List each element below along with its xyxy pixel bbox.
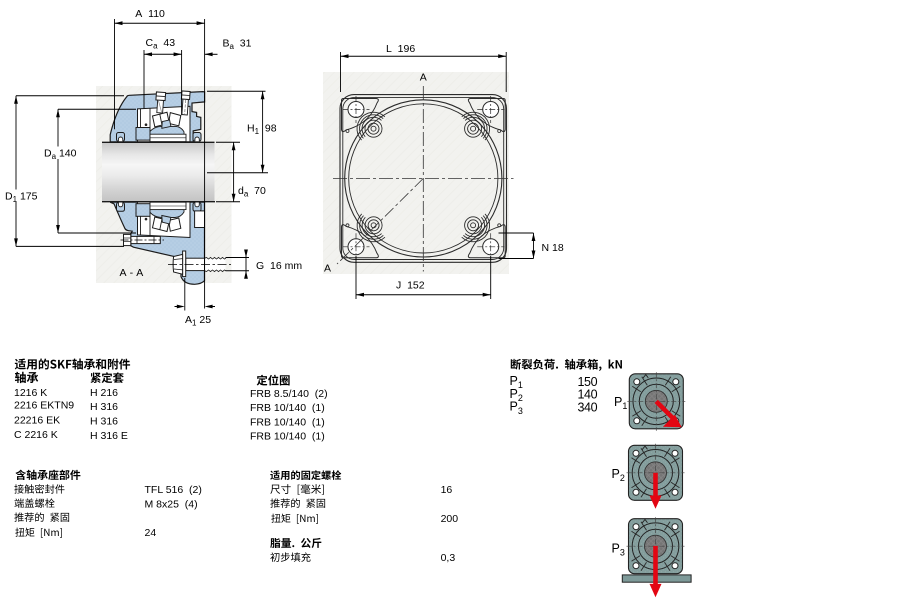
svg-text:16: 16 xyxy=(441,484,453,496)
svg-text:340: 340 xyxy=(578,400,598,414)
svg-text:TFL 516 (2): TFL 516 (2) xyxy=(145,484,202,496)
svg-text:H 316: H 316 xyxy=(90,401,118,413)
svg-text:P1: P1 xyxy=(614,395,627,411)
svg-text:FRB 10/140 (1): FRB 10/140 (1) xyxy=(250,416,325,428)
svg-text:FRB 10/140 (1): FRB 10/140 (1) xyxy=(250,431,325,443)
svg-text:C 2216 K: C 2216 K xyxy=(14,429,58,441)
svg-text:A: A xyxy=(324,263,331,275)
svg-text:M 8x25 (4): M 8x25 (4) xyxy=(145,498,198,510)
svg-text:FRB 10/140 (1): FRB 10/140 (1) xyxy=(250,402,325,414)
svg-text:G 16 mm: G 16 mm xyxy=(256,260,302,272)
svg-text:Ba 31: Ba 31 xyxy=(223,38,252,52)
svg-text:H 316: H 316 xyxy=(90,416,118,428)
svg-text:22216 EK: 22216 EK xyxy=(14,414,60,426)
svg-text:200: 200 xyxy=(441,513,459,525)
svg-text:H 216: H 216 xyxy=(90,387,118,399)
svg-text:2216 EKTN9: 2216 EKTN9 xyxy=(14,399,74,411)
svg-text:A1 25: A1 25 xyxy=(185,314,211,328)
svg-text:N 18: N 18 xyxy=(542,242,564,254)
svg-text:L 196: L 196 xyxy=(386,43,415,55)
svg-text:Ca 43: Ca 43 xyxy=(146,37,176,51)
svg-text:A 110: A 110 xyxy=(135,8,165,20)
svg-text:Da 140: Da 140 xyxy=(44,148,77,162)
svg-text:P3: P3 xyxy=(612,541,625,557)
svg-text:FRB 8.5/140 (2): FRB 8.5/140 (2) xyxy=(250,388,328,400)
svg-text:da 70: da 70 xyxy=(238,185,266,199)
svg-text:24: 24 xyxy=(145,527,157,539)
svg-text:H 316 E: H 316 E xyxy=(90,430,128,442)
svg-text:A - A: A - A xyxy=(120,267,144,279)
svg-text:D1 175: D1 175 xyxy=(5,191,38,205)
svg-text:H1 98: H1 98 xyxy=(247,123,277,137)
svg-text:J 152: J 152 xyxy=(396,280,425,292)
svg-text:0,3: 0,3 xyxy=(441,552,456,564)
svg-text:A: A xyxy=(420,72,427,84)
svg-text:P2: P2 xyxy=(612,467,625,483)
svg-text:1216 K: 1216 K xyxy=(14,387,47,399)
